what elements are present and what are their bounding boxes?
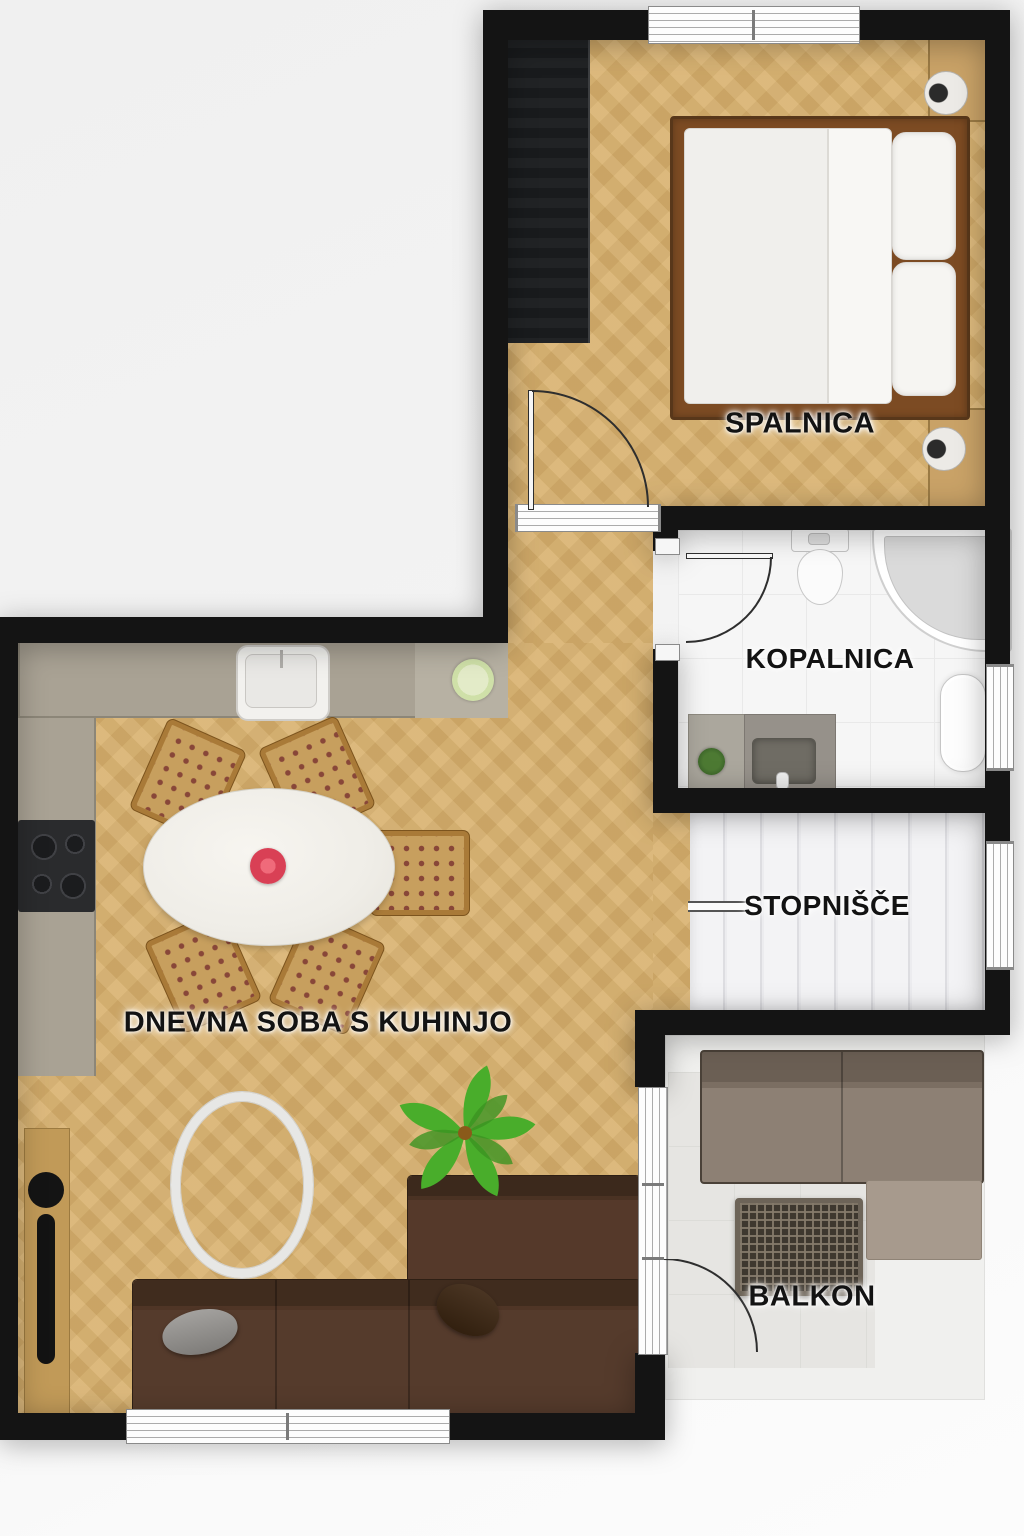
- label-balcony: BALKON: [748, 1281, 875, 1314]
- balcony-glazing: [638, 1087, 668, 1355]
- wall-kitchen-top: [0, 617, 508, 643]
- wall-living-left: [0, 617, 18, 1440]
- sofa-seat-seam-2: [408, 1280, 410, 1422]
- living-room-window: [126, 1409, 450, 1444]
- balcony-glazing-mullion-2: [642, 1257, 664, 1260]
- wall-stairs-bottom: [640, 1010, 1010, 1035]
- label-bathroom: KOPALNICA: [746, 643, 915, 675]
- sofa-seat-seam-1: [275, 1280, 277, 1422]
- vanity-faucet: [776, 772, 789, 790]
- kitchen-sink-tap: [280, 650, 283, 668]
- staircase-window: [986, 841, 1014, 970]
- outdoor-sofa-seam: [841, 1052, 843, 1182]
- bedroom-window: [648, 6, 860, 44]
- floor-plan: SPALNICA KOPALNICA STOPNIŠČE BALKON DNEV…: [0, 0, 1024, 1536]
- flower-centerpiece: [250, 848, 286, 884]
- bed-pillow-bottom: [892, 262, 956, 396]
- floor-lamp-head: [28, 1172, 64, 1208]
- outdoor-ottoman: [866, 1180, 982, 1260]
- living-room-window-mullion: [286, 1413, 289, 1440]
- label-living-kitchen: DNEVNA SOBA S KUHINJO: [124, 1007, 513, 1040]
- label-bedroom: SPALNICA: [725, 408, 875, 441]
- label-staircase: STOPNIŠČE: [744, 890, 910, 922]
- bathroom-doorframe-top: [655, 538, 680, 555]
- bedroom-door-threshold: [515, 504, 661, 532]
- bedside-lamp-bottom: [922, 427, 966, 471]
- ring-rug: [171, 1092, 313, 1278]
- bedroom-door-leaf: [528, 390, 534, 510]
- tv-unit: [37, 1214, 55, 1364]
- large-plant: [390, 1058, 540, 1208]
- bed-pillow-top: [892, 132, 956, 260]
- stairs-handrail: [688, 901, 746, 912]
- stair-landing-floor: [653, 790, 690, 1012]
- outdoor-sofa: [700, 1050, 984, 1184]
- bedside-lamp-top: [924, 71, 968, 115]
- bathroom-window: [986, 664, 1014, 771]
- cooktop: [18, 820, 95, 912]
- bathroom-door-leaf: [686, 553, 773, 559]
- bed-mattress-duvet: [684, 128, 892, 404]
- bathroom-doorframe-bottom: [655, 644, 680, 661]
- toilet-flush-button: [808, 533, 830, 545]
- bedroom-window-mullion: [752, 10, 755, 40]
- balcony-glazing-mullion-1: [642, 1183, 664, 1186]
- kitchen-plant: [452, 659, 494, 701]
- bathroom-plant: [698, 748, 725, 775]
- kitchen-sink: [236, 645, 330, 721]
- wardrobe: [503, 38, 590, 343]
- towel-radiator: [940, 674, 986, 772]
- wall-bathroom-left-b: [653, 649, 678, 790]
